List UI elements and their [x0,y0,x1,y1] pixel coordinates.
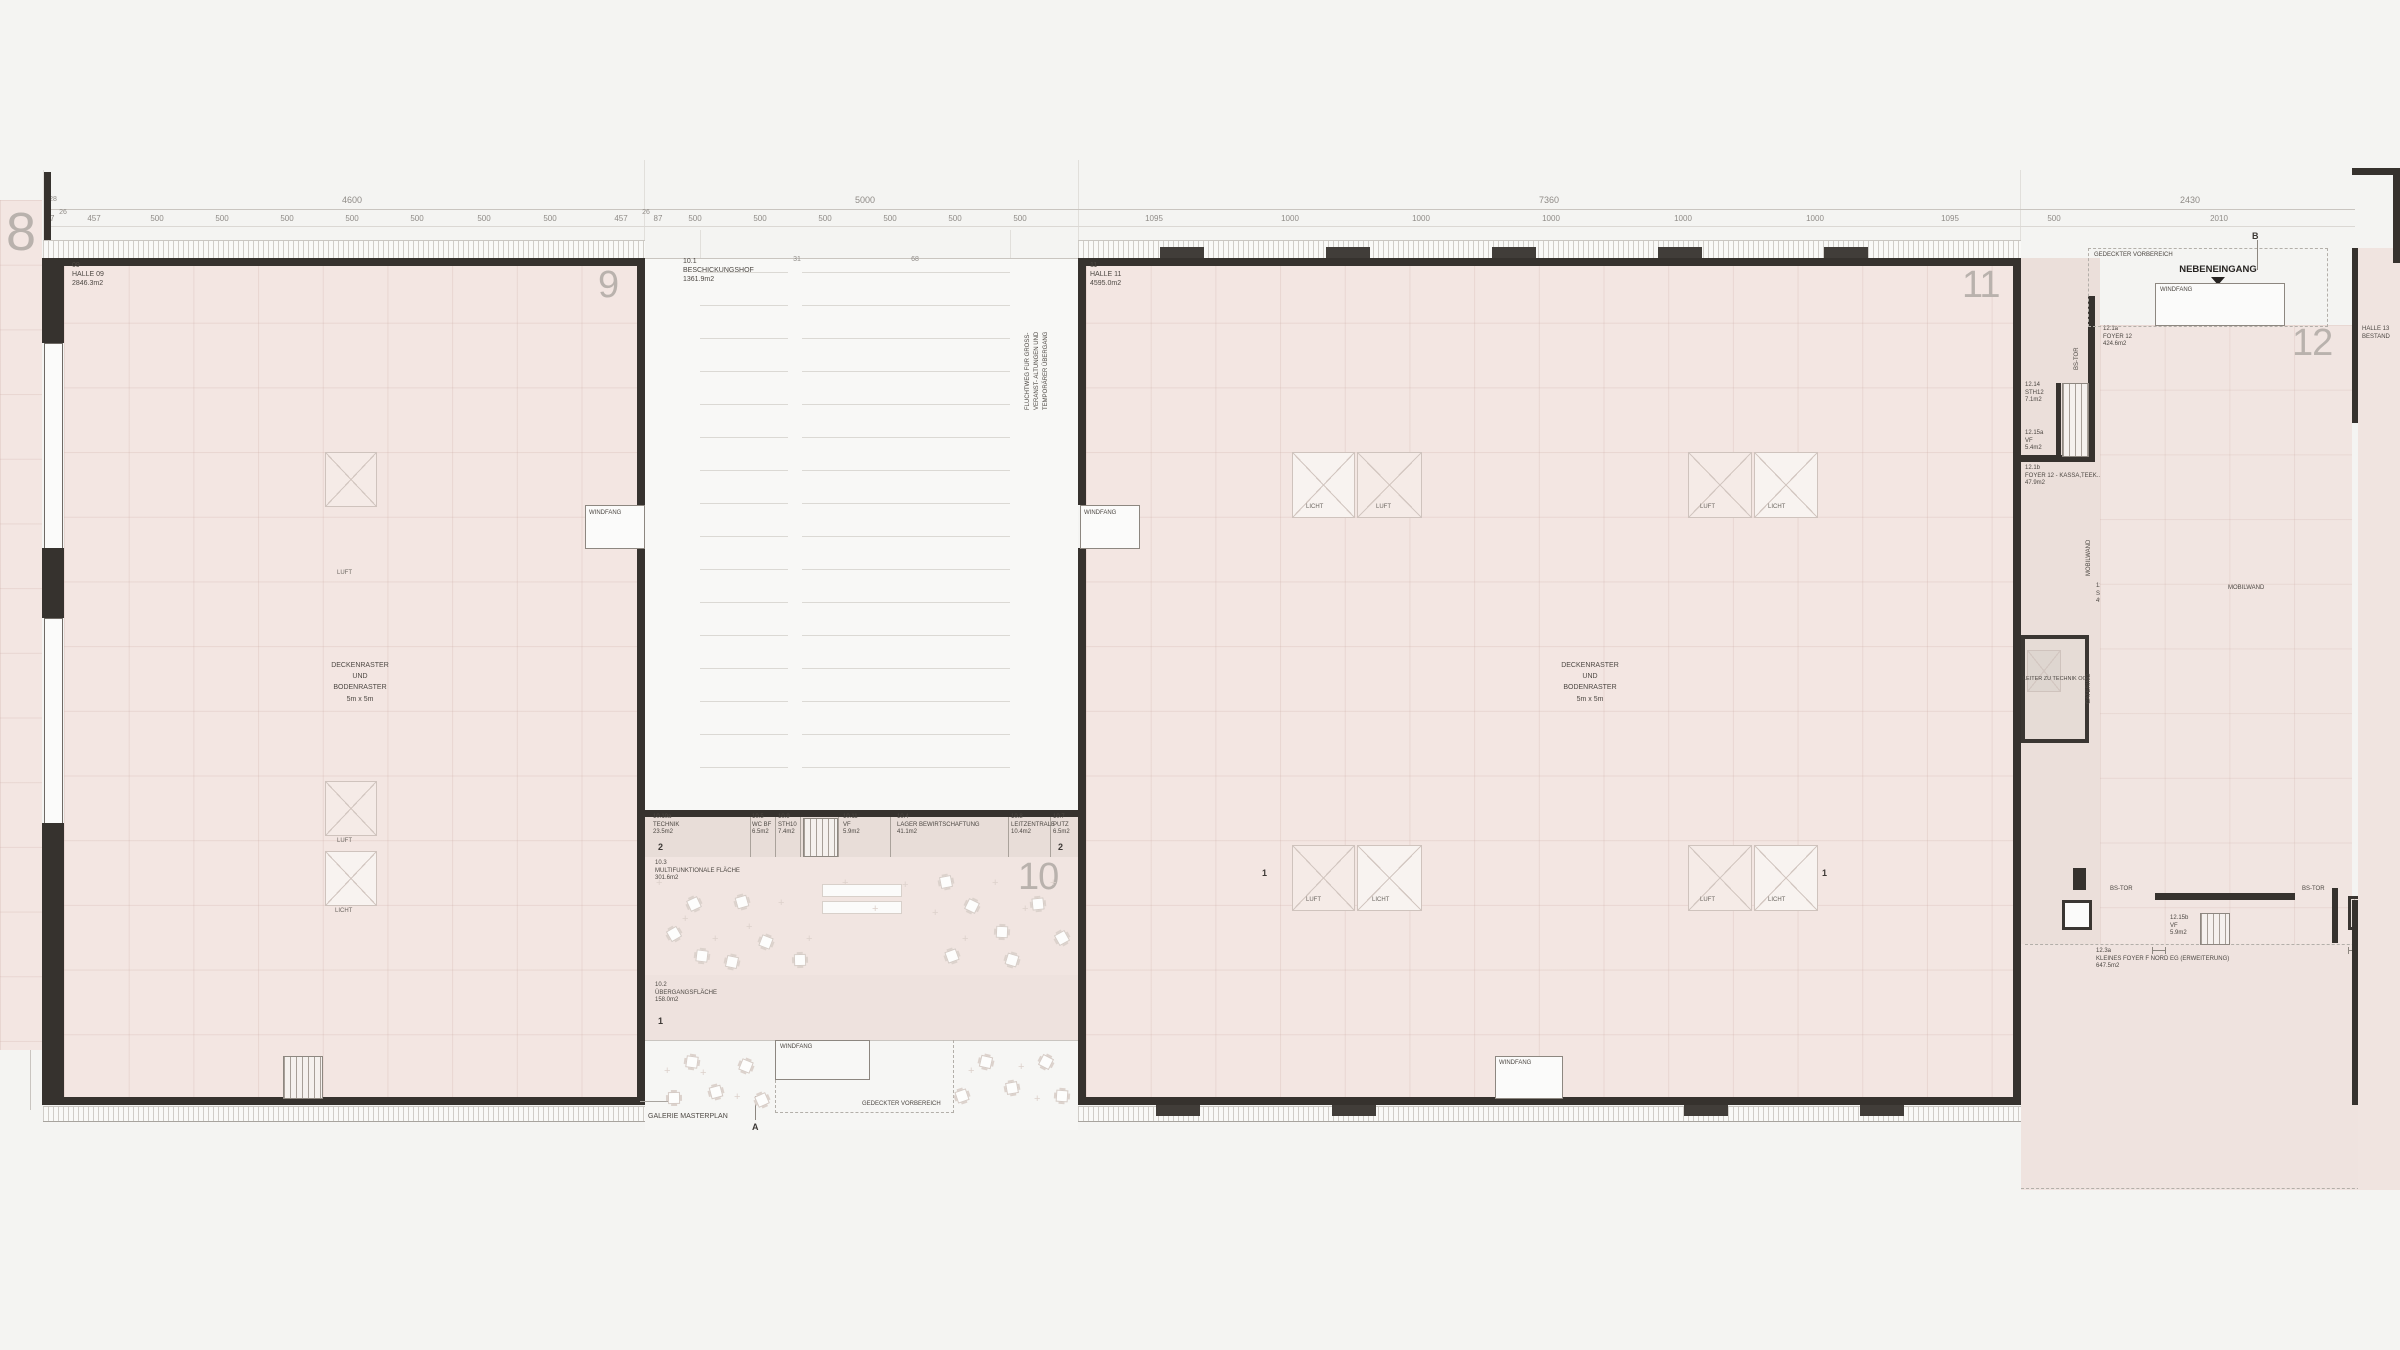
section-marker-a: A [752,1122,759,1132]
dim-tick: 457 [87,214,100,223]
hall11-door-north [1658,247,1702,258]
skylight-box [325,452,377,507]
table-icon [725,955,739,969]
loading-stripes-gap [788,270,802,802]
dim-tick: 500 [215,214,228,223]
sparkle-icon: + [712,934,718,945]
skylight-box [325,781,377,836]
sparkle-icon: + [1050,878,1056,889]
hall9-window-west [44,343,63,550]
dim-tick: 2010 [2210,214,2228,223]
hall11-door-south [1860,1105,1904,1116]
gedeckter-vorbereich-label: GEDECKTER VORBEREICH [862,1101,941,1109]
room-divider [775,817,776,857]
section-marker-1: 1 [658,1016,663,1026]
shaft-box [2062,900,2092,930]
section-marker-2: 2 [1058,842,1063,852]
skylight-box [325,851,377,906]
room-divider [890,817,891,857]
hall9-canopy-north [43,240,645,259]
mobilwand-label: MOBILWAND [2086,520,2094,576]
hall11-door-south [1156,1105,1200,1116]
sparkle-icon: + [992,878,998,889]
stair-12-15b [2200,913,2230,945]
licht-label: LICHT [335,908,352,916]
hall9-wall-west [42,548,64,618]
luft-label: LUFT [1700,504,1715,512]
hall11-door-north [1160,247,1204,258]
luft-label: LUFT [337,838,352,846]
sparkle-icon: + [700,1068,706,1079]
table-icon [939,875,953,889]
sparkle-icon: + [746,922,752,933]
hall11-room-label: 11 HALLE 11 4595.0m2 [1090,262,1121,288]
dim-tick: 1000 [1542,214,1560,223]
sparkle-icon: + [682,914,688,925]
technik-shaft-box [2027,650,2061,692]
nebeneingang-label: NEBENEINGANG [2158,264,2278,276]
room-label-12-15a: 12.15a VF 5.4m2 [2025,430,2043,453]
table-icon [794,954,806,966]
strip12-wall [2073,868,2086,890]
sparkle-icon: + [842,878,848,889]
dim-tick: 500 [477,214,490,223]
hall11-wall-north [1078,258,2021,266]
bs-tor-label: BS-TOR [2110,886,2133,894]
sparkle-icon: + [656,878,662,889]
hall9-raster-note: DECKENRASTER UND BODENRASTER 5m x 5m [285,660,435,705]
construction-line [644,160,645,240]
hall11-door-north [1824,247,1868,258]
dim-tick: 26 [59,209,67,216]
stair-sth10 [803,818,838,857]
section-line-b [2257,240,2258,270]
hall8-number: 8 [6,205,35,259]
hall9-wall-west [42,258,64,343]
hall9-wall-south [43,1097,645,1105]
hall13-label: HALLE 13 BESTAND [2362,326,2390,341]
table-icon [1031,897,1044,910]
luft-label: LUFT [337,570,352,578]
hall11-wall-west [1078,548,1086,1097]
sparkle-icon: + [1018,1062,1024,1073]
hall13-wall [2352,900,2358,1105]
room-label-12-1a: 12.1a FOYER 12 424.6m2 [2103,326,2132,349]
room-label-10-2: 10.2 ÜBERGANGSFLÄCHE 158.0m2 [655,982,717,1005]
dim-tick: 500 [948,214,961,223]
dashed-boundary-south [2021,1188,2400,1189]
dim-tick: 1000 [1412,214,1430,223]
dim-total-court: 5000 [855,195,875,205]
galerie-masterplan-label: GALERIE MASTERPLAN [648,1113,728,1122]
dim-tick: 500 [688,214,701,223]
skylight-box [1688,452,1752,518]
foyer12-wall [2155,893,2295,900]
sparkle-icon: + [778,898,784,909]
room-label-10-9: 10.9 STH10 7.4m2 [778,814,797,837]
hall9-wall-east [637,548,645,1097]
hall12-number: 12 [2292,324,2332,362]
table-icon [695,949,708,962]
table-icon [996,926,1009,939]
luft-label: LUFT [1700,897,1715,905]
dim-tick: 1095 [1941,214,1959,223]
sparkle-icon: + [664,1066,670,1077]
hall9-wall-north [43,258,645,266]
hall11-number: 11 [1962,266,1999,304]
dim-tick: 500 [150,214,163,223]
dim-tick: 1000 [1806,214,1824,223]
dimension-line-top2 [45,226,2355,227]
sparkle-icon: + [872,904,878,915]
hall13-wall [2352,248,2358,423]
skylight-box [1357,845,1422,911]
hall9-number: 9 [598,266,618,304]
hall9-wall-west [42,823,64,1105]
skylight-box [1688,845,1752,911]
counter-table [822,884,902,897]
dim-tick: 457 [614,214,627,223]
room-label-12-3a: 12.3a KLEINES FOYER F NORD EG (ERWEITERU… [2096,948,2229,971]
dim-tick: 500 [2047,214,2060,223]
sparkle-icon: + [1034,1094,1040,1105]
lift-wall [2332,888,2338,943]
hall11-wall-west [1078,258,1086,505]
construction-line [1078,160,1079,240]
luft-label: LUFT [1306,897,1321,905]
hall11-door-north [1492,247,1536,258]
hall13-wall-top [2393,175,2400,263]
dim-tick: 1000 [1281,214,1299,223]
licht-label: LICHT [1306,504,1323,512]
room-divider [800,817,801,857]
dimension-line-top [45,209,2355,210]
erweiterung-floor [2021,944,2390,1190]
hall11-wall-east [2013,258,2021,1105]
loading-stripes [700,272,1010,800]
counter-table [822,901,902,914]
hall9-wall-east [637,258,645,505]
dim-total-hall9: 4600 [342,195,362,205]
dim-tick: 500 [1013,214,1026,223]
hall11-door-south [1332,1105,1376,1116]
room-label-10-5: 10.5 WC BF 6.5m2 [752,814,771,837]
sparkle-icon: + [932,908,938,919]
room-label-10-4: 10.4 LAGER BEWIRTSCHAFTUNG 41.1m2 [897,814,980,837]
dim-tick: 500 [410,214,423,223]
licht-label: LICHT [1768,504,1785,512]
hall9-south-door-hatch [283,1056,323,1099]
leiter-label: LEITER ZU TECHNIK OG [2023,676,2087,683]
hall11-canopy-north [1078,240,2021,259]
hall8-floor [0,200,42,1050]
dim-tick: 1095 [1145,214,1163,223]
room-divider [750,817,751,857]
table-icon [1005,1081,1019,1095]
grid-axis-label: 31 [793,256,801,263]
section-marker-2: 2 [658,842,663,852]
catering-label: CATERING [2086,652,2094,704]
room-label-10-1: 10.1 BESCHICKUNGSHOF 1361.9m2 [683,258,754,284]
skylight-box [1292,452,1355,518]
room-label-10-11: 10.11 VF 5.9m2 [843,814,860,837]
dim-total-right: 2430 [2180,195,2200,205]
section-marker-1: 1 [1262,868,1267,878]
sparkle-icon: + [734,1092,740,1103]
section-marker-1: 1 [1822,868,1827,878]
hall9-canopy-south [43,1106,645,1122]
hall9-window-west [44,618,63,825]
windfang-label: WINDFANG [589,510,621,518]
dim-tick: 500 [345,214,358,223]
sparkle-icon: + [962,934,968,945]
room-label-12-14: 12.14 STH12 7.1m2 [2025,382,2044,405]
hall13-floor [2358,248,2400,1190]
room-divider [1008,817,1009,857]
floor-plan-canvas: 4600 5000 7360 2430 28 67 26 457 500 500… [0,0,2400,1350]
dim-tick: 1000 [1674,214,1692,223]
licht-label: LICHT [1768,897,1785,905]
dim-tick: 500 [883,214,896,223]
sparkle-icon: + [806,934,812,945]
section-marker-b: B [2252,231,2259,241]
windfang-label: WINDFANG [1499,1060,1531,1068]
room-label-12-15b: 12.15b VF 5.9m2 [2170,915,2188,938]
sparkle-icon: + [902,880,908,891]
hall9-room-label: 09 HALLE 09 2846.3m2 [72,262,104,288]
skylight-box [1754,452,1818,518]
dim-tick: 87 [654,214,663,223]
windfang-label: WINDFANG [2160,287,2192,295]
dim-tick: 500 [753,214,766,223]
dim-tick: 26 [642,209,650,216]
skylight-box [1292,845,1355,911]
mobilwand-label: MOBILWAND [2228,585,2264,593]
fluchtweg-note: FLUCHTWEG FÜR GROSS- VERANST- ALTUNGEN U… [1024,300,1051,410]
room-label-10-8: 10.8 LEITZENTRALE 10.4m2 [1011,814,1055,837]
room-label-10-10a: 10.10a TECHNIK 23.5m2 [653,814,679,837]
dim-tick: 500 [543,214,556,223]
grid-axis-label: 68 [911,256,919,263]
dim-total-hall11: 7360 [1539,195,1559,205]
windfang-label: WINDFANG [1084,510,1116,518]
hall11-door-south [1684,1105,1728,1116]
windfang-label: WINDFANG [780,1044,812,1052]
hall11-door-north [1326,247,1370,258]
table-icon [668,1092,680,1104]
bs-tor-label: BS-TOR [2074,330,2082,370]
dim-tick: 500 [818,214,831,223]
room-divider [838,817,839,857]
hall11-raster-note: DECKENRASTER UND BODENRASTER 5m x 5m [1515,660,1665,705]
gedeckter-vorbereich-label: GEDECKTER VORBEREICH [2094,252,2173,260]
skylight-box [1754,845,1818,911]
dim-tick: 500 [280,214,293,223]
room-label-10-3: 10.3 MULTIFUNKTIONALE FLÄCHE 301.6m2 [655,860,740,883]
strip12-wall [2056,383,2061,459]
stair-sth12 [2062,383,2089,457]
luft-label: LUFT [1376,504,1391,512]
sparkle-icon: + [1022,904,1028,915]
room-label-10-7: 10.7 PUTZ 6.5m2 [1053,814,1070,837]
sparkle-icon: + [968,1066,974,1077]
room-label-12-1b: 12.1b FOYER 12 - KASSA,TEEK... 47.9m2 [2025,465,2102,488]
construction-line [2020,170,2021,240]
hall13-wall-top [2352,168,2400,175]
bs-tor-label: BS-TOR [2302,886,2325,894]
table-icon [1056,1090,1069,1103]
licht-label: LICHT [1372,897,1389,905]
foyer12-floor [2100,325,2352,944]
table-icon [685,1055,699,1069]
